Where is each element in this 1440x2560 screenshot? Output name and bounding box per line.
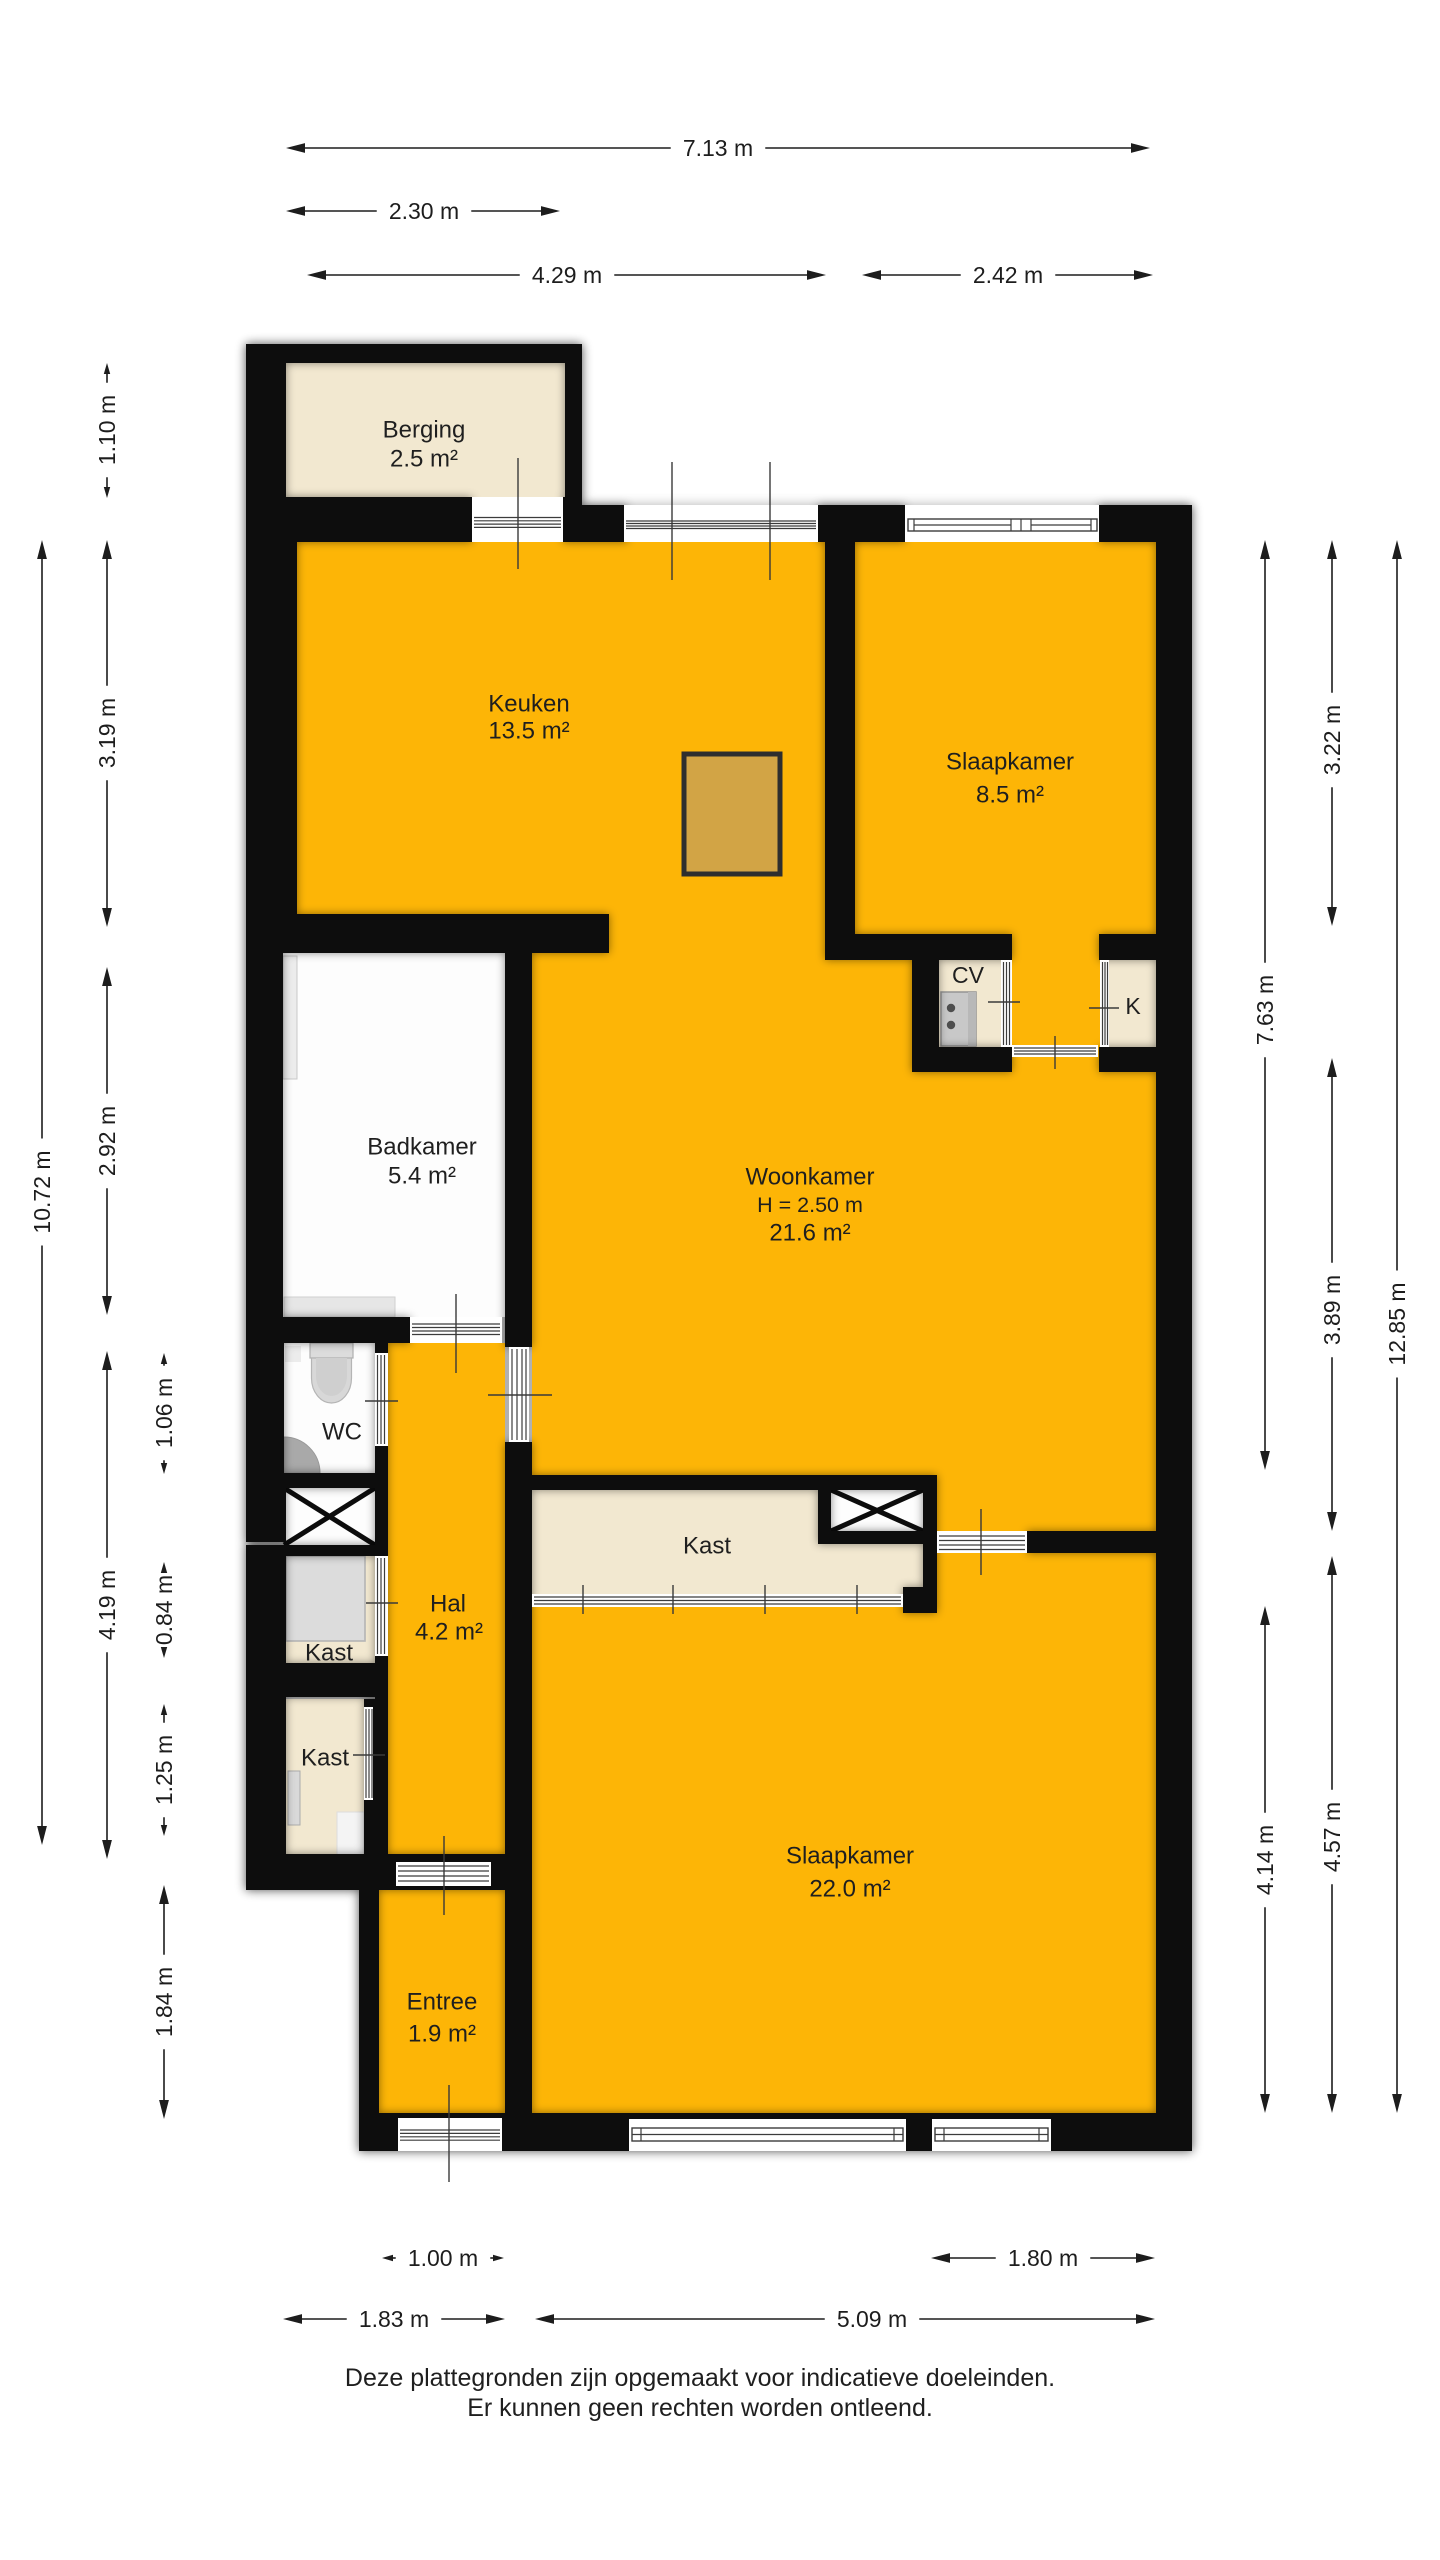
svg-text:Er kunnen geen rechten worden: Er kunnen geen rechten worden ontleend. — [467, 2394, 933, 2422]
svg-text:1.25 m: 1.25 m — [151, 1735, 177, 1805]
svg-text:Deze plattegronden zijn opgema: Deze plattegronden zijn opgemaakt voor i… — [345, 2364, 1055, 2392]
svg-text:Entree: Entree — [407, 1989, 478, 2016]
svg-text:1.06 m: 1.06 m — [151, 1378, 177, 1448]
svg-text:5.09 m: 5.09 m — [837, 2306, 907, 2332]
svg-text:Kast: Kast — [305, 1640, 353, 1667]
svg-text:CV: CV — [952, 962, 985, 988]
svg-text:Berging: Berging — [383, 417, 466, 444]
svg-text:Kast: Kast — [683, 1533, 731, 1560]
svg-text:Badkamer: Badkamer — [367, 1134, 476, 1161]
svg-text:Hal: Hal — [430, 1591, 466, 1618]
svg-text:2.92 m: 2.92 m — [94, 1106, 120, 1176]
svg-text:1.80 m: 1.80 m — [1008, 2245, 1078, 2271]
svg-text:12.85 m: 12.85 m — [1384, 1282, 1410, 1365]
svg-text:5.4 m²: 5.4 m² — [388, 1163, 456, 1190]
svg-text:8.5 m²: 8.5 m² — [976, 782, 1044, 809]
svg-text:4.2 m²: 4.2 m² — [415, 1619, 483, 1646]
svg-text:H = 2.50 m: H = 2.50 m — [757, 1193, 863, 1217]
svg-text:7.63 m: 7.63 m — [1252, 975, 1278, 1045]
svg-text:13.5 m²: 13.5 m² — [488, 718, 569, 745]
svg-text:Slaapkamer: Slaapkamer — [786, 1843, 914, 1870]
svg-text:3.89 m: 3.89 m — [1319, 1275, 1345, 1345]
svg-text:2.30 m: 2.30 m — [389, 198, 459, 224]
svg-text:4.29 m: 4.29 m — [532, 262, 602, 288]
svg-text:1.9 m²: 1.9 m² — [408, 2021, 476, 2048]
svg-text:1.83 m: 1.83 m — [359, 2306, 429, 2332]
svg-text:K: K — [1125, 993, 1141, 1019]
svg-text:0.84 m: 0.84 m — [151, 1575, 177, 1645]
svg-text:Slaapkamer: Slaapkamer — [946, 749, 1074, 776]
svg-text:22.0 m²: 22.0 m² — [809, 1876, 890, 1903]
svg-text:4.14 m: 4.14 m — [1252, 1825, 1278, 1895]
svg-text:2.42 m: 2.42 m — [973, 262, 1043, 288]
svg-text:21.6 m²: 21.6 m² — [769, 1220, 850, 1247]
svg-text:3.19 m: 3.19 m — [94, 698, 120, 768]
svg-text:4.57 m: 4.57 m — [1319, 1802, 1345, 1872]
svg-text:WC: WC — [322, 1419, 362, 1446]
svg-text:4.19 m: 4.19 m — [94, 1570, 120, 1640]
svg-text:7.13 m: 7.13 m — [683, 135, 753, 161]
svg-text:Kast: Kast — [301, 1745, 349, 1772]
svg-text:10.72 m: 10.72 m — [29, 1150, 55, 1233]
svg-text:3.22 m: 3.22 m — [1319, 705, 1345, 775]
svg-text:1.10 m: 1.10 m — [94, 395, 120, 465]
svg-text:1.00 m: 1.00 m — [408, 2245, 478, 2271]
svg-text:2.5 m²: 2.5 m² — [390, 446, 458, 473]
svg-text:Woonkamer: Woonkamer — [746, 1164, 875, 1191]
svg-text:1.84 m: 1.84 m — [151, 1967, 177, 2037]
svg-text:Keuken: Keuken — [488, 691, 569, 718]
